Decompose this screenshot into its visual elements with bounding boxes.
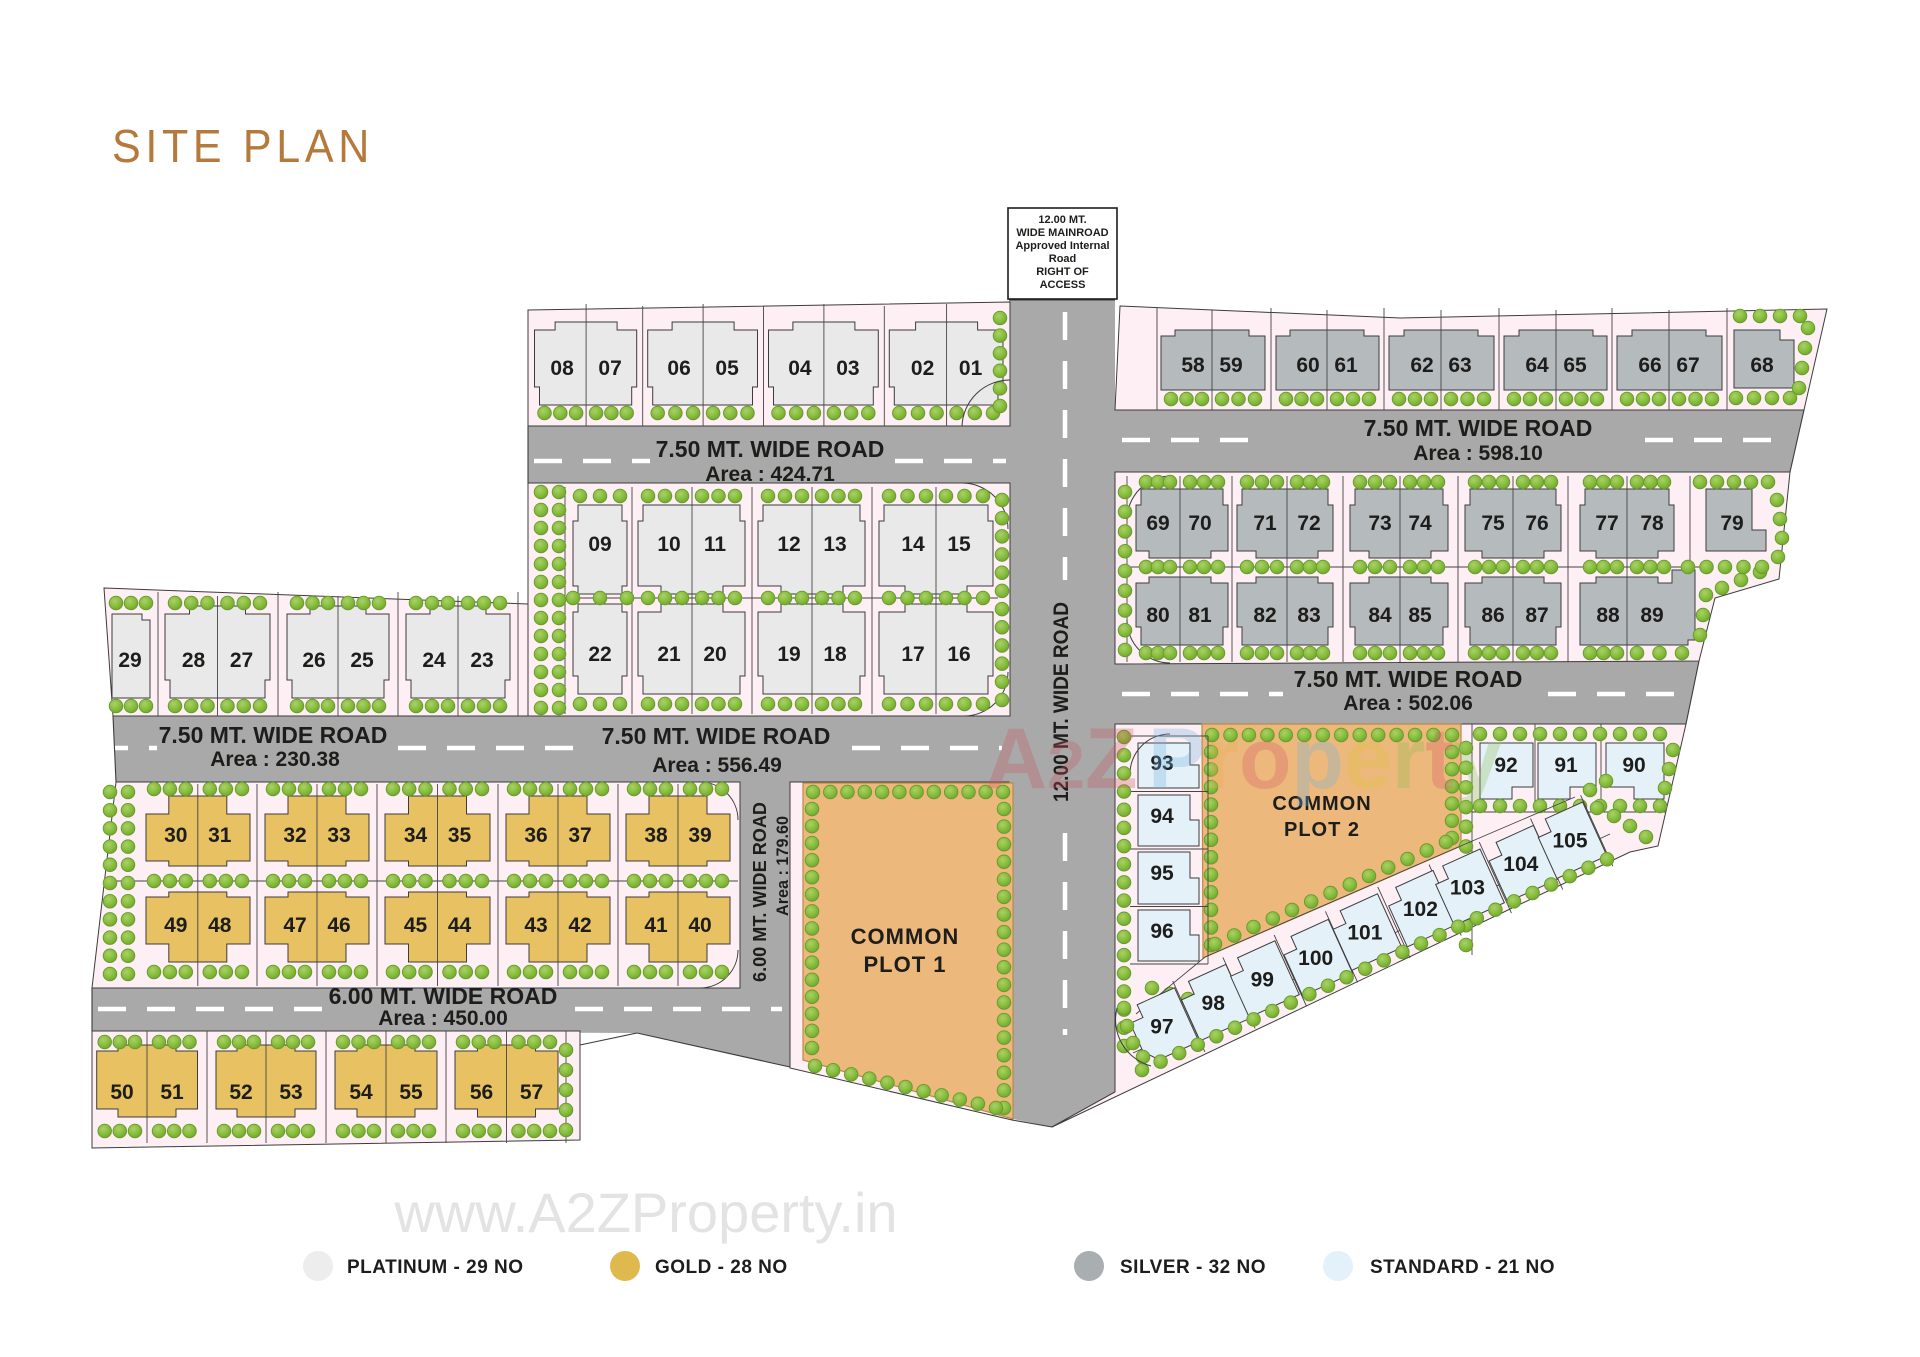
- svg-text:64: 64: [1525, 354, 1549, 377]
- svg-text:7.50 MT. WIDE ROAD: 7.50 MT. WIDE ROAD: [1294, 666, 1523, 692]
- svg-text:07: 07: [598, 357, 621, 380]
- svg-text:36: 36: [524, 824, 547, 847]
- svg-text:Road: Road: [1049, 253, 1077, 265]
- svg-text:66: 66: [1638, 354, 1661, 377]
- svg-text:98: 98: [1202, 992, 1226, 1015]
- svg-text:ACCESS: ACCESS: [1040, 279, 1086, 291]
- svg-text:SILVER - 32 NO: SILVER - 32 NO: [1120, 1257, 1266, 1278]
- svg-text:31: 31: [208, 824, 232, 847]
- svg-text:70: 70: [1188, 512, 1211, 535]
- svg-text:77: 77: [1595, 512, 1618, 535]
- svg-text:45: 45: [404, 914, 428, 937]
- svg-text:Area : 450.00: Area : 450.00: [378, 1007, 508, 1030]
- svg-text:63: 63: [1448, 354, 1471, 377]
- svg-text:17: 17: [901, 643, 924, 666]
- svg-text:21: 21: [657, 643, 681, 666]
- svg-text:57: 57: [520, 1081, 543, 1104]
- svg-text:22: 22: [588, 643, 611, 666]
- svg-text:86: 86: [1481, 604, 1504, 627]
- svg-text:50: 50: [110, 1081, 133, 1104]
- svg-text:40: 40: [688, 914, 711, 937]
- svg-text:44: 44: [448, 914, 472, 937]
- svg-text:08: 08: [550, 357, 574, 380]
- svg-text:GOLD - 28 NO: GOLD - 28 NO: [655, 1257, 788, 1278]
- svg-text:79: 79: [1720, 512, 1743, 535]
- svg-text:51: 51: [160, 1081, 184, 1104]
- svg-text:STANDARD - 21 NO: STANDARD - 21 NO: [1370, 1257, 1555, 1278]
- svg-text:58: 58: [1181, 354, 1205, 377]
- svg-text:30: 30: [164, 824, 187, 847]
- svg-text:81: 81: [1188, 604, 1212, 627]
- svg-text:11: 11: [704, 533, 727, 556]
- svg-text:54: 54: [349, 1081, 373, 1104]
- svg-text:28: 28: [182, 649, 206, 672]
- svg-text:Area : 598.10: Area : 598.10: [1413, 442, 1543, 465]
- svg-text:69: 69: [1146, 512, 1169, 535]
- svg-text:101: 101: [1347, 921, 1382, 944]
- svg-text:74: 74: [1408, 512, 1432, 535]
- svg-text:37: 37: [568, 824, 591, 847]
- svg-text:24: 24: [422, 649, 446, 672]
- svg-text:Approved Internal: Approved Internal: [1015, 240, 1109, 252]
- svg-text:26: 26: [302, 649, 325, 672]
- svg-text:49: 49: [164, 914, 187, 937]
- svg-text:46: 46: [327, 914, 350, 937]
- svg-text:7.50 MT. WIDE ROAD: 7.50 MT. WIDE ROAD: [159, 722, 388, 748]
- svg-text:7.50 MT. WIDE ROAD: 7.50 MT. WIDE ROAD: [602, 723, 831, 749]
- svg-text:41: 41: [644, 914, 668, 937]
- svg-text:19: 19: [777, 643, 800, 666]
- svg-text:76: 76: [1525, 512, 1548, 535]
- svg-text:www.A2ZProperty.in: www.A2ZProperty.in: [393, 1181, 897, 1244]
- svg-text:95: 95: [1150, 862, 1174, 885]
- svg-text:87: 87: [1525, 604, 1548, 627]
- svg-text:33: 33: [327, 824, 350, 847]
- svg-text:38: 38: [644, 824, 668, 847]
- svg-text:29: 29: [118, 649, 141, 672]
- svg-text:82: 82: [1253, 604, 1276, 627]
- svg-text:75: 75: [1481, 512, 1505, 535]
- svg-text:96: 96: [1150, 920, 1173, 943]
- svg-text:Area : 556.49: Area : 556.49: [652, 754, 782, 777]
- svg-text:12: 12: [777, 533, 800, 556]
- svg-text:7.50 MT. WIDE ROAD: 7.50 MT. WIDE ROAD: [656, 436, 885, 462]
- svg-text:10: 10: [657, 533, 680, 556]
- svg-text:09: 09: [588, 533, 611, 556]
- svg-text:47: 47: [283, 914, 306, 937]
- svg-text:60: 60: [1296, 354, 1319, 377]
- svg-text:90: 90: [1622, 754, 1645, 777]
- svg-text:Area : 230.38: Area : 230.38: [210, 748, 340, 771]
- svg-text:42: 42: [568, 914, 591, 937]
- svg-text:27: 27: [230, 649, 253, 672]
- svg-text:02: 02: [911, 357, 934, 380]
- svg-text:89: 89: [1640, 604, 1663, 627]
- svg-text:WIDE MAINROAD: WIDE MAINROAD: [1016, 227, 1108, 239]
- svg-text:84: 84: [1368, 604, 1392, 627]
- svg-text:35: 35: [448, 824, 472, 847]
- svg-text:7.50 MT. WIDE ROAD: 7.50 MT. WIDE ROAD: [1364, 415, 1593, 441]
- svg-text:71: 71: [1253, 512, 1277, 535]
- svg-text:6.00 MT. WIDE ROAD: 6.00 MT. WIDE ROAD: [329, 983, 558, 1009]
- svg-text:13: 13: [823, 533, 846, 556]
- svg-text:39: 39: [688, 824, 711, 847]
- svg-text:104: 104: [1503, 853, 1538, 876]
- svg-text:SITE PLAN: SITE PLAN: [112, 120, 374, 172]
- svg-text:53: 53: [279, 1081, 302, 1104]
- svg-text:48: 48: [208, 914, 232, 937]
- svg-text:PLATINUM - 29 NO: PLATINUM - 29 NO: [347, 1257, 524, 1278]
- svg-text:55: 55: [399, 1081, 423, 1104]
- svg-text:100: 100: [1298, 947, 1333, 970]
- svg-text:PLOT 1: PLOT 1: [863, 952, 946, 977]
- svg-text:61: 61: [1334, 354, 1358, 377]
- svg-text:103: 103: [1450, 877, 1485, 900]
- svg-text:94: 94: [1150, 805, 1174, 828]
- svg-text:68: 68: [1750, 354, 1774, 377]
- svg-text:73: 73: [1368, 512, 1391, 535]
- svg-text:25: 25: [350, 649, 374, 672]
- svg-text:18: 18: [823, 643, 847, 666]
- svg-text:56: 56: [470, 1081, 493, 1104]
- svg-text:88: 88: [1596, 604, 1620, 627]
- svg-text:6.00 MT. WIDE ROAD: 6.00 MT. WIDE ROAD: [750, 802, 770, 982]
- svg-text:34: 34: [404, 824, 428, 847]
- svg-text:12.00 MT.: 12.00 MT.: [1038, 214, 1086, 226]
- svg-text:99: 99: [1251, 968, 1274, 991]
- svg-text:72: 72: [1297, 512, 1320, 535]
- svg-text:85: 85: [1408, 604, 1432, 627]
- svg-text:14: 14: [901, 533, 925, 556]
- svg-text:52: 52: [229, 1081, 252, 1104]
- svg-text:59: 59: [1219, 354, 1242, 377]
- svg-text:Property: Property: [1148, 711, 1502, 807]
- svg-text:Area : 424.71: Area : 424.71: [705, 463, 835, 486]
- svg-text:PLOT 2: PLOT 2: [1284, 819, 1360, 841]
- svg-text:62: 62: [1410, 354, 1433, 377]
- svg-text:06: 06: [667, 357, 690, 380]
- svg-text:03: 03: [836, 357, 859, 380]
- svg-text:15: 15: [947, 533, 971, 556]
- svg-text:97: 97: [1150, 1015, 1173, 1038]
- svg-text:105: 105: [1552, 830, 1587, 853]
- svg-text:78: 78: [1640, 512, 1664, 535]
- svg-text:01: 01: [959, 357, 983, 380]
- svg-text:80: 80: [1146, 604, 1169, 627]
- svg-text:05: 05: [715, 357, 739, 380]
- svg-text:23: 23: [470, 649, 493, 672]
- svg-text:91: 91: [1554, 754, 1578, 777]
- svg-text:Area : 179.60: Area : 179.60: [774, 816, 792, 916]
- svg-text:20: 20: [703, 643, 726, 666]
- svg-text:67: 67: [1676, 354, 1699, 377]
- svg-text:16: 16: [947, 643, 970, 666]
- svg-text:32: 32: [283, 824, 306, 847]
- svg-text:65: 65: [1563, 354, 1587, 377]
- svg-text:43: 43: [524, 914, 547, 937]
- svg-text:102: 102: [1403, 898, 1438, 921]
- svg-text:RIGHT OF: RIGHT OF: [1036, 266, 1089, 278]
- svg-text:83: 83: [1297, 604, 1320, 627]
- svg-text:COMMON: COMMON: [851, 924, 960, 949]
- svg-text:04: 04: [788, 357, 812, 380]
